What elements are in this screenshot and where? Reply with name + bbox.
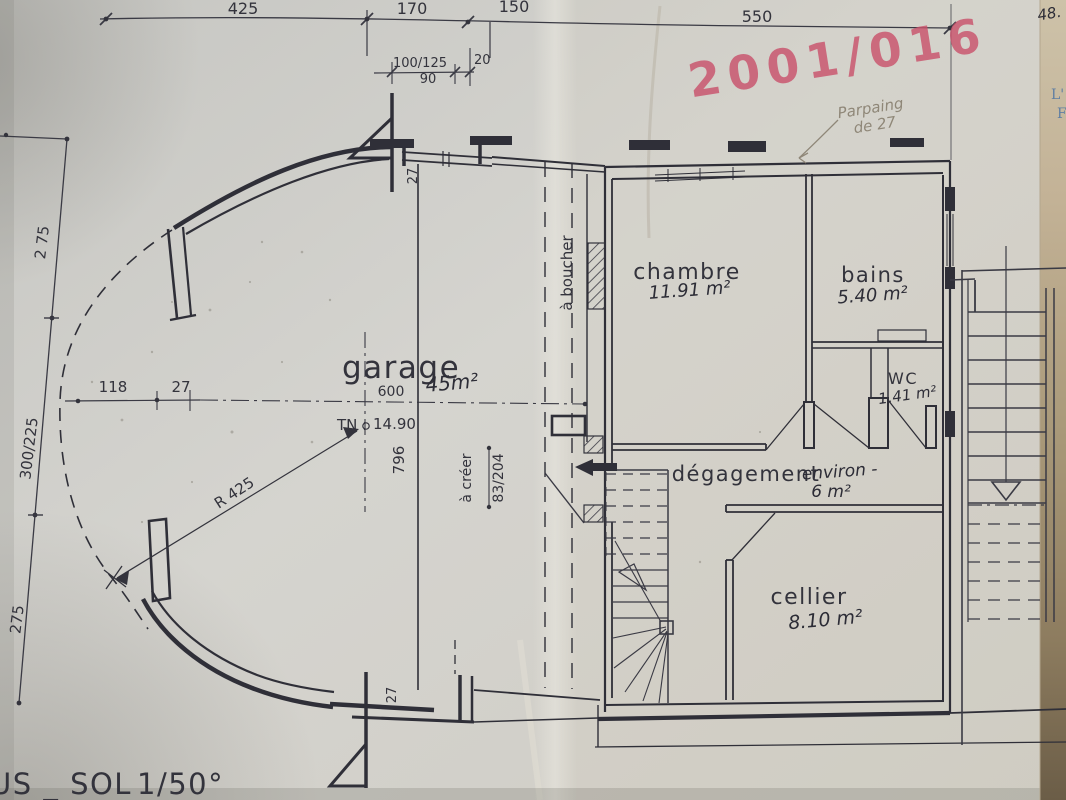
- lintel-label: 100/125: [393, 56, 447, 71]
- scanned-floor-plan: 425 170 150 550 100/125 90 20 2 75 300/2…: [0, 0, 1066, 800]
- degagement-area: 6 m²: [811, 482, 851, 502]
- a-boucher-label: à boucher: [558, 235, 576, 311]
- entrance-hatch-upper: [584, 436, 603, 453]
- a-creer-label: à créer: [459, 453, 475, 502]
- window-sill-bar-2: [470, 136, 512, 145]
- wall-thickness-top-27: 27: [406, 168, 421, 185]
- ext-stair-stub-cap: [950, 279, 975, 280]
- left-dim-275b: 275: [6, 604, 27, 635]
- opening-dim-dot-top: [487, 446, 491, 450]
- opening-size-83-204: 83/204: [491, 453, 507, 502]
- plan-scale: 1/50°: [137, 767, 224, 800]
- vent-bar-1: [629, 140, 670, 150]
- wall-thickness-bottom-27: 27: [385, 687, 400, 704]
- lintel-offset: 20: [474, 53, 491, 68]
- right-window-bar-1: [945, 187, 955, 211]
- vent-bar-3: [890, 138, 924, 147]
- degagement-label: dégagement: [672, 462, 821, 486]
- garage-depth-796: 796: [390, 446, 408, 475]
- fold-highlight: [533, 0, 577, 800]
- garage-width-600: 600: [378, 384, 405, 400]
- title-block: US _ SOL 1/50°: [0, 767, 224, 800]
- dim-label-170: 170: [397, 0, 428, 18]
- blue-margin-fragment-2: F: [1057, 106, 1066, 122]
- vent-bar-2: [728, 141, 766, 152]
- left-edge-shade: [0, 0, 14, 800]
- dim-label-150: 150: [499, 0, 530, 16]
- dim-label-425: 425: [228, 0, 259, 18]
- right-window-bar-2: [945, 267, 955, 289]
- floor-plan-drawing: 425 170 150 550 100/125 90 20 2 75 300/2…: [0, 0, 1066, 800]
- lintel-width: 90: [420, 72, 437, 87]
- front-dim-27: 27: [171, 378, 190, 396]
- plan-title: US _ SOL: [0, 767, 132, 800]
- right-window-bar-3: [945, 411, 955, 437]
- cellier-label: cellier: [770, 585, 847, 610]
- dim-label-550: 550: [742, 7, 773, 26]
- tn-level-value: 14.90: [373, 415, 416, 433]
- a-boucher-hatch: [588, 243, 605, 309]
- opening-dim-dot-bottom: [487, 505, 491, 509]
- entrance-hatch-lower: [584, 505, 603, 522]
- garage-pier-lower: [149, 519, 170, 601]
- window-sill-bar-1: [370, 139, 414, 148]
- front-dim-118: 118: [99, 378, 128, 396]
- blue-margin-fragment-1: L': [1051, 87, 1064, 103]
- garage-area-label: 45m²: [424, 368, 479, 397]
